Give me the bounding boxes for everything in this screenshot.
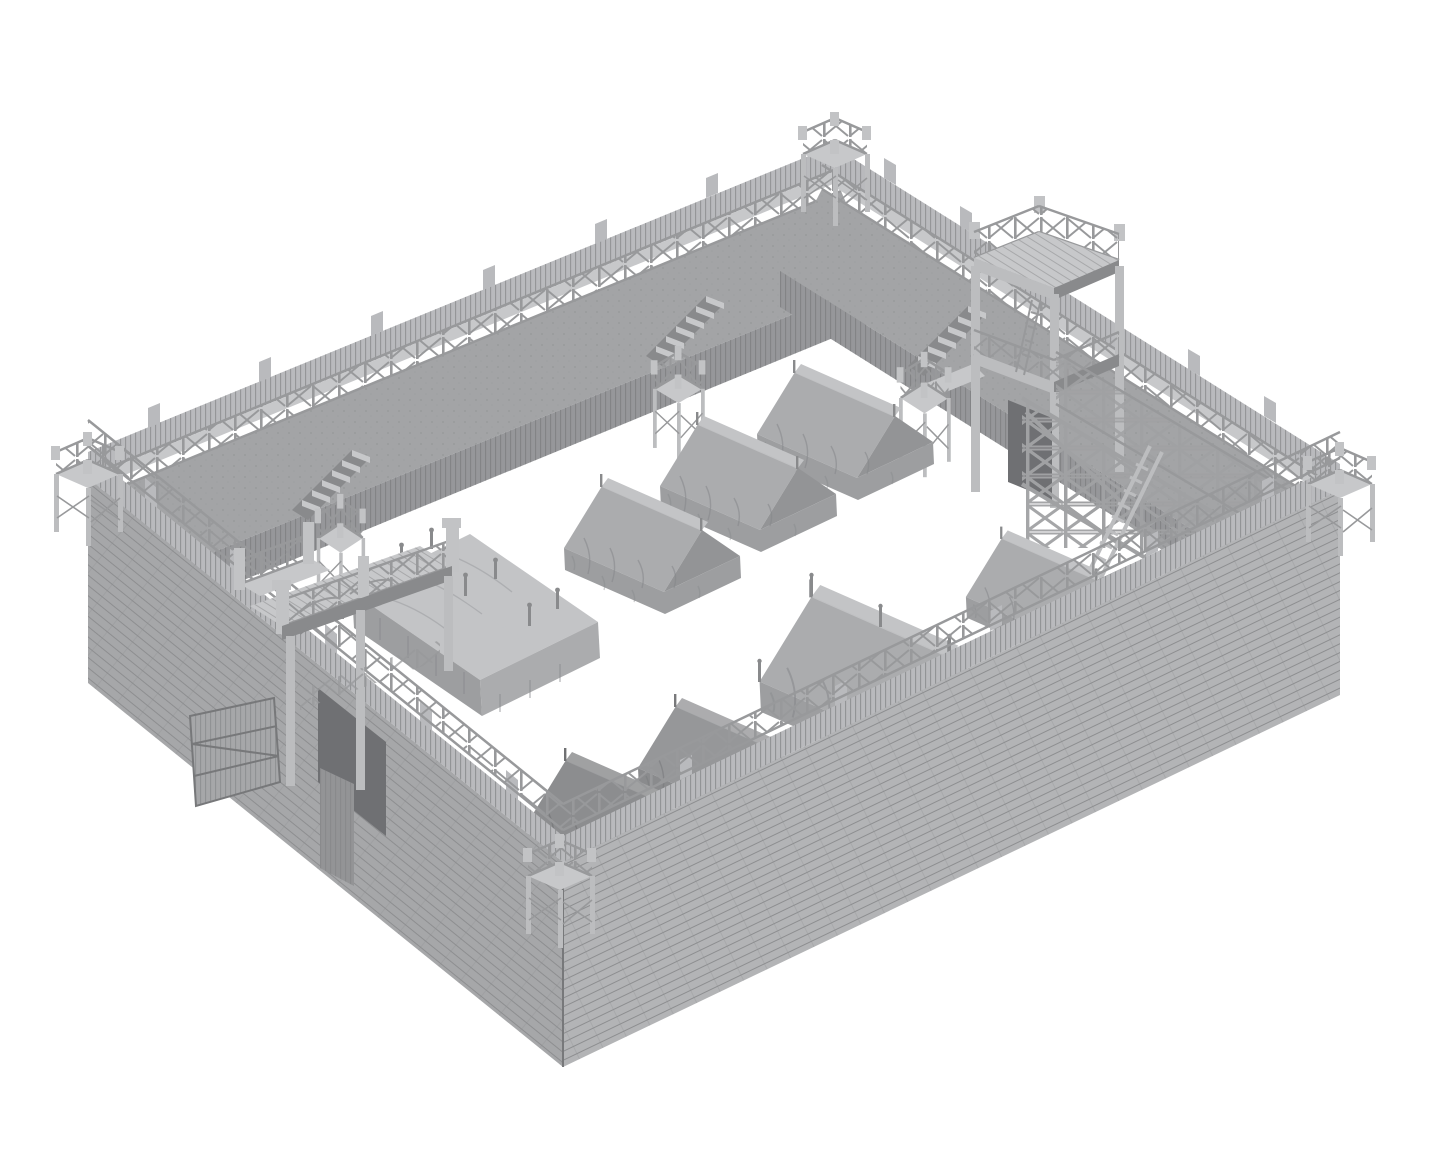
render-canvas	[0, 0, 1445, 1156]
fort-render	[0, 0, 1445, 1156]
